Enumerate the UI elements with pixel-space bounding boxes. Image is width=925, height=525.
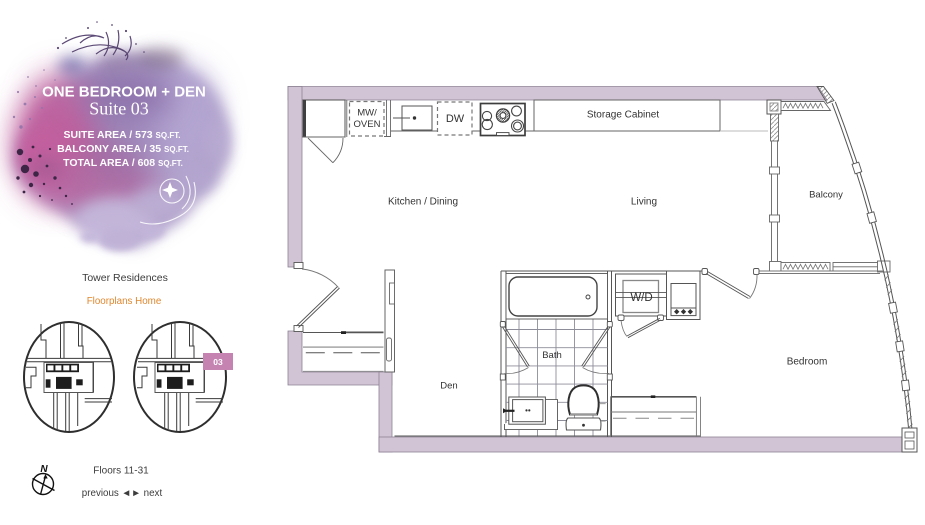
- svg-text:previous ◄► next: previous ◄► next: [82, 488, 163, 499]
- svg-text:Bath: Bath: [542, 350, 562, 361]
- svg-text:Floorplans Home: Floorplans Home: [87, 296, 162, 307]
- svg-text:DW: DW: [446, 113, 465, 125]
- svg-text:BALCONY AREA / 35 SQ.FT.: BALCONY AREA / 35 SQ.FT.: [57, 143, 189, 155]
- svg-text:Storage Cabinet: Storage Cabinet: [587, 110, 659, 121]
- svg-text:Tower Residences: Tower Residences: [82, 272, 168, 284]
- svg-text:Bedroom: Bedroom: [787, 357, 828, 368]
- svg-text:MW/: MW/: [357, 108, 377, 119]
- svg-text:Balcony: Balcony: [809, 190, 843, 201]
- svg-text:OVEN: OVEN: [354, 119, 381, 130]
- svg-text:Floors 11-31: Floors 11-31: [93, 466, 149, 477]
- svg-text:SUITE AREA / 573 SQ.FT.: SUITE AREA / 573 SQ.FT.: [64, 129, 181, 141]
- svg-text:03: 03: [213, 357, 223, 367]
- svg-text:TOTAL AREA / 608 SQ.FT.: TOTAL AREA / 608 SQ.FT.: [63, 157, 183, 169]
- svg-text:Living: Living: [631, 197, 657, 208]
- svg-text:Kitchen / Dining: Kitchen / Dining: [388, 197, 458, 208]
- svg-text:Den: Den: [440, 381, 457, 392]
- svg-text:N: N: [40, 464, 48, 475]
- svg-text:W/D: W/D: [630, 292, 652, 304]
- svg-text:Suite 03: Suite 03: [89, 99, 149, 119]
